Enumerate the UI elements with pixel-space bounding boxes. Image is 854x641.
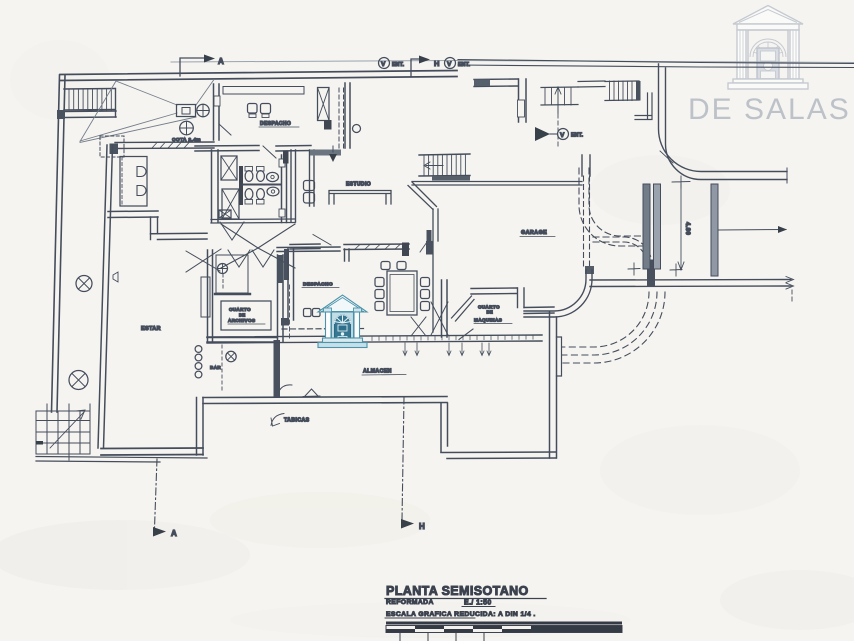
svg-text:CUARTO: CUARTO <box>229 307 251 312</box>
svg-text:4.00: 4.00 <box>684 222 690 236</box>
svg-text:ENT.: ENT. <box>571 133 584 139</box>
svg-text:REFORMADA: REFORMADA <box>386 599 434 606</box>
svg-text:ESTAR: ESTAR <box>141 326 161 332</box>
svg-text:H: H <box>419 522 425 531</box>
svg-text:PLANTA SEMISOTANO: PLANTA SEMISOTANO <box>386 584 529 598</box>
svg-text:ALMACEN: ALMACEN <box>363 369 392 375</box>
svg-text:V: V <box>447 61 452 68</box>
svg-text:H: H <box>434 59 440 68</box>
svg-text:ENT.: ENT. <box>392 62 405 68</box>
svg-text:V: V <box>560 132 565 139</box>
svg-text:ESTUDIO: ESTUDIO <box>346 182 371 188</box>
svg-text:DE: DE <box>487 310 494 315</box>
svg-text:BAR: BAR <box>210 365 221 370</box>
svg-text:MAQUINAS: MAQUINAS <box>474 318 502 323</box>
svg-text:E./ 1:50: E./ 1:50 <box>464 600 492 607</box>
svg-text:A: A <box>171 529 177 538</box>
svg-text:ENT.: ENT. <box>458 62 471 68</box>
svg-text:A: A <box>218 57 224 66</box>
svg-text:ESCALA GRAFICA REDUCIDA: A DIN: ESCALA GRAFICA REDUCIDA: A DIN 1/4 . <box>386 611 536 618</box>
svg-text:DESPACHO: DESPACHO <box>260 121 291 127</box>
svg-text:V: V <box>381 61 386 68</box>
svg-text:DESPACHO: DESPACHO <box>303 282 333 288</box>
svg-text:TABICAS: TABICAS <box>284 418 310 424</box>
svg-text:GARAGE: GARAGE <box>521 230 547 236</box>
svg-text:ARCHIVOS: ARCHIVOS <box>228 318 255 323</box>
svg-text:DE SALAS: DE SALAS <box>688 93 851 126</box>
svg-text:DE: DE <box>239 313 246 318</box>
